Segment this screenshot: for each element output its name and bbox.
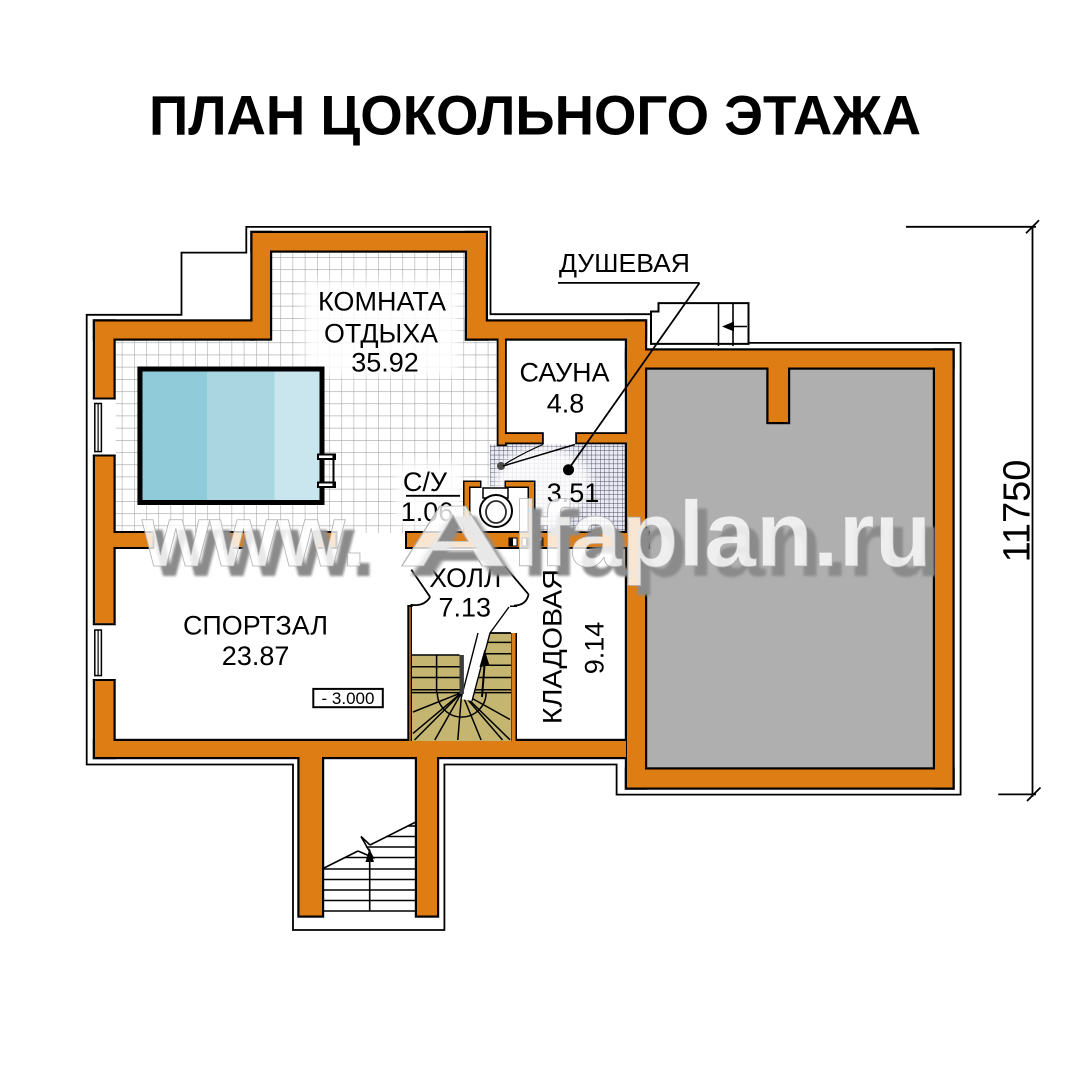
svg-text:- 3.000: - 3.000	[322, 689, 375, 708]
svg-text:ДУШЕВАЯ: ДУШЕВАЯ	[559, 248, 690, 278]
svg-text:СПОРТЗАЛ: СПОРТЗАЛ	[183, 611, 328, 641]
svg-text:7.13: 7.13	[439, 593, 492, 623]
svg-text:A: A	[398, 488, 508, 585]
svg-text:www.: www.	[141, 488, 366, 585]
svg-text:11750: 11750	[997, 460, 1039, 563]
svg-text:23.87: 23.87	[222, 641, 290, 671]
svg-text:ПЛАН ЦОКОЛЬНОГО ЭТАЖА: ПЛАН ЦОКОЛЬНОГО ЭТАЖА	[149, 84, 921, 147]
svg-text:4.8: 4.8	[547, 388, 585, 418]
svg-text:САУНА: САУНА	[520, 357, 610, 387]
svg-text:35.92: 35.92	[351, 348, 419, 378]
svg-text:КОМНАТА: КОМНАТА	[318, 287, 446, 317]
svg-text:lfaplan.ru: lfaplan.ru	[513, 482, 932, 586]
svg-text:ОТДЫХА: ОТДЫХА	[324, 319, 438, 349]
svg-text:9.14: 9.14	[579, 622, 609, 675]
